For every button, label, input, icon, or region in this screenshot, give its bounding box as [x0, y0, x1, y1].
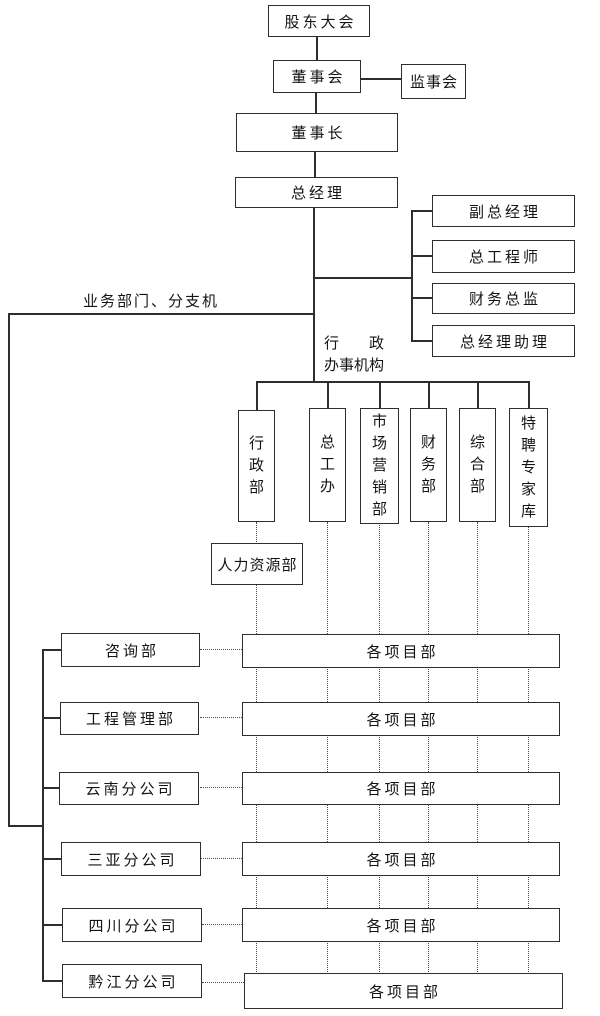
- node-label: 总经理: [288, 182, 345, 203]
- node-branch-sichuan: 四川分公司: [62, 908, 202, 942]
- node-label: 各项目部: [363, 849, 438, 870]
- line-stub-branch-4: [42, 858, 62, 860]
- node-label: 副总经理: [466, 201, 541, 222]
- line-stub-dept-5: [477, 381, 479, 408]
- node-label: 三亚分公司: [84, 849, 177, 870]
- node-supervisory-board: 监事会: [401, 64, 466, 99]
- node-branch-qianjiang: 黔江分公司: [62, 964, 202, 998]
- node-label: 人力资源部: [216, 554, 297, 575]
- line-stub-branch-5: [42, 924, 62, 926]
- node-deputy-general-manager: 副总经理: [432, 195, 575, 227]
- node-label: 综合部: [470, 432, 485, 498]
- node-dept-chief-engineer-office: 总工办: [309, 408, 346, 522]
- node-project-depts-row: 各项目部: [242, 634, 560, 668]
- node-label: 特聘专家库: [521, 413, 536, 523]
- node-branch-engineering-mgmt: 工程管理部: [60, 702, 199, 735]
- line-stub-dept-4: [428, 381, 430, 408]
- line-stub-branch-2: [42, 717, 62, 719]
- line-board-chairman: [315, 93, 317, 113]
- node-label: 咨询部: [102, 640, 159, 661]
- node-dept-marketing: 市场营销部: [360, 408, 399, 524]
- line-stub-dept-1: [256, 381, 258, 410]
- dotted-link-branch-1: [200, 649, 242, 650]
- line-business-branch-top: [8, 313, 314, 315]
- line-stub-dept-6: [528, 381, 530, 410]
- dotted-link-branch-6: [202, 982, 244, 983]
- node-branch-sanya: 三亚分公司: [61, 842, 201, 876]
- node-label: 工程管理部: [83, 708, 176, 729]
- node-label: 总工办: [320, 432, 335, 498]
- node-project-depts-row: 各项目部: [242, 772, 560, 805]
- node-hr-department: 人力资源部: [211, 543, 303, 585]
- node-project-depts-row: 各项目部: [242, 702, 560, 736]
- node-label: 各项目部: [366, 981, 441, 1002]
- line-outer-left-spine: [8, 313, 10, 826]
- node-label: 各项目部: [363, 709, 438, 730]
- node-label: 黔江分公司: [85, 971, 178, 992]
- node-general-manager: 总经理: [235, 177, 398, 208]
- node-dept-finance: 财务部: [410, 408, 447, 522]
- line-stub-finance-director: [411, 297, 432, 299]
- line-board-supervisory: [361, 78, 401, 80]
- dotted-link-branch-5: [202, 924, 242, 925]
- node-dept-general: 综合部: [459, 408, 496, 522]
- line-staff-spine: [411, 210, 413, 342]
- node-project-depts-row: 各项目部: [244, 973, 563, 1009]
- dotted-link-branch-3: [200, 787, 242, 788]
- line-branch-spine: [42, 649, 44, 982]
- line-stub-branch-6: [42, 980, 62, 982]
- line-dept-connector: [256, 381, 529, 383]
- node-label: 市场营销部: [372, 411, 387, 521]
- label-business-branches: 业务部门、分支机: [83, 290, 219, 311]
- node-label: 董事长: [288, 122, 345, 143]
- dotted-link-branch-2: [200, 717, 242, 718]
- line-stub-dept-3: [379, 381, 381, 408]
- line-shareholders-board: [316, 37, 318, 60]
- label-admin-office-line1: 行 政: [324, 333, 388, 355]
- node-gm-assistant: 总经理助理: [432, 325, 575, 357]
- node-label: 财务总监: [466, 288, 541, 309]
- line-outer-join: [8, 825, 43, 827]
- node-board-of-directors: 董事会: [273, 60, 361, 93]
- line-stub-dept-2: [327, 381, 329, 408]
- node-label: 四川分公司: [85, 915, 178, 936]
- node-label: 云南分公司: [82, 778, 175, 799]
- node-label: 行政部: [249, 433, 264, 499]
- node-chief-engineer: 总工程师: [432, 240, 575, 273]
- line-stub-deputy-gm: [411, 210, 432, 212]
- node-label: 总经理助理: [457, 331, 550, 352]
- node-label: 各项目部: [363, 641, 438, 662]
- node-label: 财务部: [421, 432, 436, 498]
- line-gm-main-spine: [313, 208, 315, 382]
- node-label: 董事会: [288, 66, 345, 87]
- line-gm-staff-branch: [313, 277, 412, 279]
- org-chart: 股东大会 董事会 监事会 董事长 总经理 副总经理 总工程师 财务总监 总经理助…: [0, 0, 600, 1016]
- line-stub-branch-1: [42, 649, 62, 651]
- node-shareholders-meeting: 股东大会: [268, 5, 370, 37]
- node-project-depts-row: 各项目部: [242, 842, 560, 876]
- line-chairman-gm: [314, 152, 316, 177]
- label-admin-office-line2: 办事机构: [324, 355, 388, 377]
- node-label: 股东大会: [281, 11, 356, 32]
- node-project-depts-row: 各项目部: [242, 908, 560, 942]
- node-dept-admin: 行政部: [238, 410, 275, 522]
- dotted-link-branch-4: [201, 858, 242, 859]
- node-finance-director: 财务总监: [432, 283, 575, 314]
- label-admin-office: 行 政 办事机构: [324, 333, 388, 377]
- node-chairman: 董事长: [236, 113, 398, 152]
- node-dept-expert-pool: 特聘专家库: [509, 408, 548, 527]
- line-stub-chief-engineer: [411, 255, 432, 257]
- line-stub-gm-assistant: [411, 340, 432, 342]
- node-label: 监事会: [409, 71, 458, 92]
- node-label: 各项目部: [363, 778, 438, 799]
- node-label: 各项目部: [363, 915, 438, 936]
- node-branch-consulting: 咨询部: [61, 633, 200, 667]
- node-label: 总工程师: [466, 246, 541, 267]
- node-branch-yunnan: 云南分公司: [59, 772, 199, 805]
